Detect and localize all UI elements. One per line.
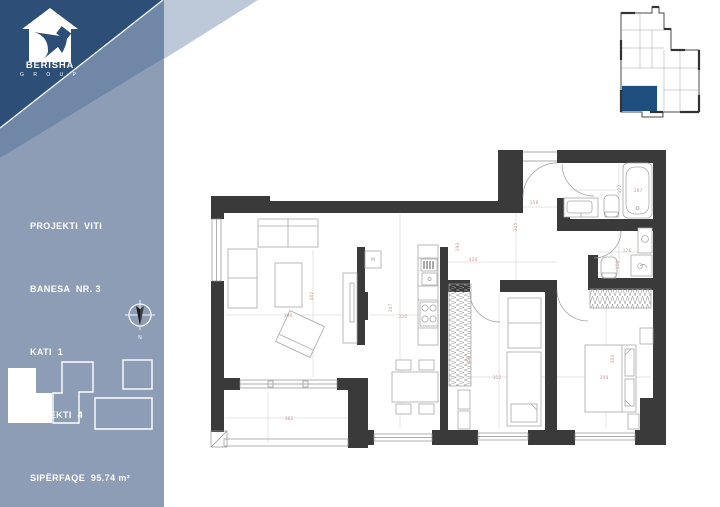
floor-plan: M: [0, 0, 720, 507]
washing-machine: [638, 228, 652, 253]
dining-table: [392, 372, 438, 402]
dimension-label: 304: [610, 355, 616, 364]
tv: [350, 283, 354, 322]
dimension-label: 158: [530, 200, 539, 206]
kitchen-furniture: [418, 245, 438, 345]
dimension-label: 382: [285, 416, 294, 422]
bathroom-toilet: [604, 195, 619, 217]
key-plan: [621, 7, 699, 117]
bathroom-door-arc: [562, 164, 594, 196]
dimension-label: 150: [615, 261, 621, 270]
dimension-label: 358: [466, 356, 472, 365]
dimension-label: 245: [513, 223, 519, 232]
presentation-sheet: BERISHA G R O U P PROJEKTI VITI BANESA N…: [0, 0, 720, 507]
shaft-label: M: [371, 257, 375, 263]
bedroom2-door-arc: [557, 290, 588, 321]
dimension-label: 220: [399, 314, 408, 320]
dimension-label: 347: [388, 304, 394, 313]
dimension-label: 287: [634, 188, 643, 194]
dimension-label: 420: [469, 257, 478, 263]
bedroom1-door-arc: [470, 292, 500, 322]
shower-drain: [631, 255, 652, 276]
dimension-label: 176: [623, 248, 632, 254]
entry-door-arc: [523, 163, 557, 197]
dimension-label: 193: [455, 243, 461, 252]
dimension-label: 312: [493, 375, 502, 381]
living-room-furniture: [228, 219, 357, 357]
shaft-box: M: [365, 251, 381, 268]
dimension-label: 172: [617, 185, 623, 194]
dining-furniture: [392, 360, 438, 414]
balcony: [211, 431, 348, 447]
wc-toilet: [601, 257, 617, 278]
dimension-label: 390: [284, 313, 293, 319]
dimension-label: 462: [309, 292, 315, 301]
key-plan-selected-unit: [622, 86, 657, 111]
wc-door-arc: [594, 231, 621, 258]
dimension-label: 298: [600, 375, 609, 381]
